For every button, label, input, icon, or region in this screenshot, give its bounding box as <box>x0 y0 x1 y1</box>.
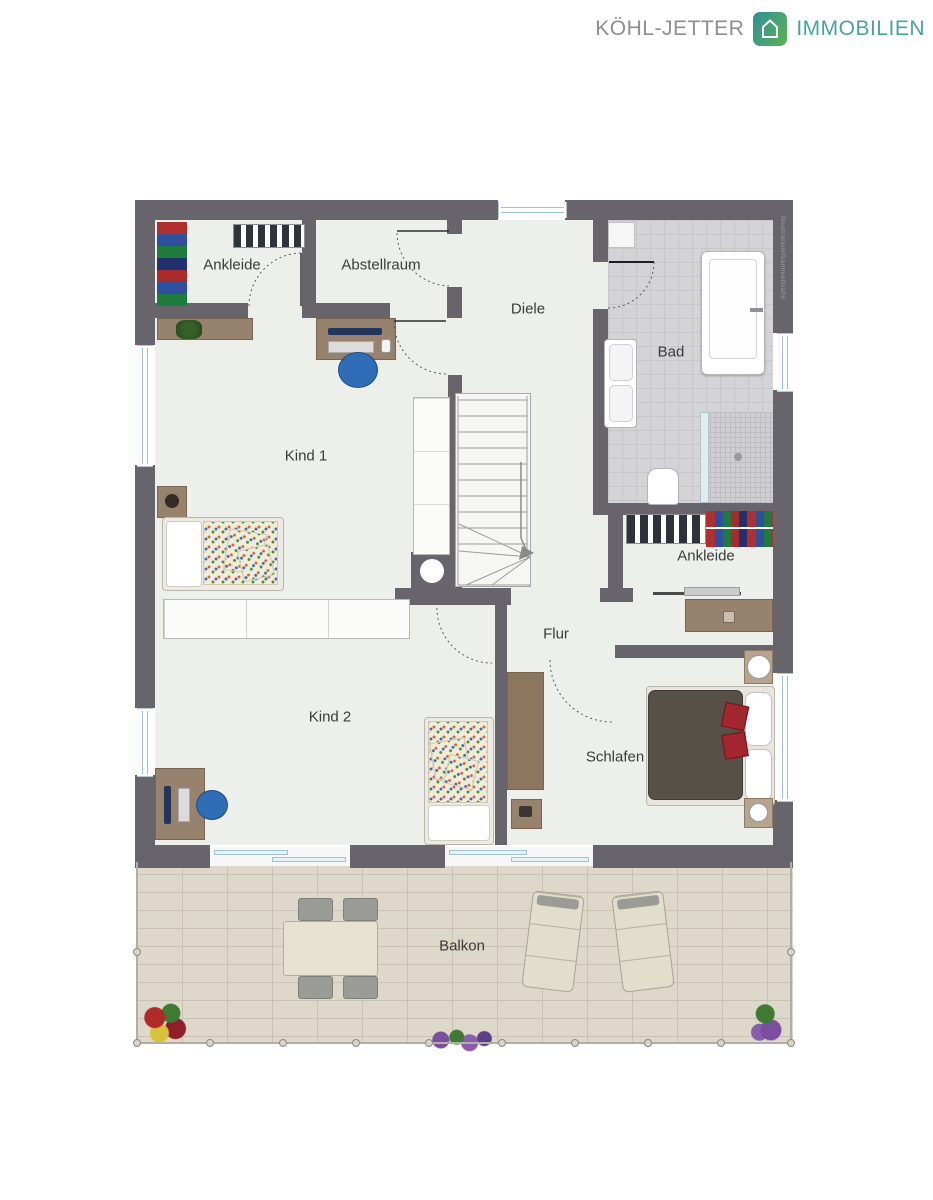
balcony-chair <box>343 976 378 999</box>
wall-segment <box>600 588 633 602</box>
balcony-chair <box>298 898 333 921</box>
window <box>137 708 153 777</box>
room-label-bad: Bad <box>658 344 685 361</box>
wardrobe-by-stairs <box>413 397 450 555</box>
room-label-diele: Diele <box>511 301 545 318</box>
washbasin-bowl <box>609 385 633 422</box>
wall-segment <box>135 200 498 220</box>
wall-segment <box>395 588 511 605</box>
house-icon <box>753 12 787 46</box>
plant <box>176 320 202 339</box>
logo-suffix-text: IMMOBILIEN <box>796 17 925 41</box>
clothes-rack <box>706 511 773 547</box>
wardrobe-kind2 <box>163 599 410 639</box>
wall-segment <box>773 800 793 845</box>
keyboard <box>178 788 190 822</box>
room-label-kind-1: Kind 1 <box>285 448 328 465</box>
shower-drain <box>734 453 742 461</box>
wall-segment <box>135 220 155 345</box>
bed-pillow <box>745 692 772 746</box>
hall-nightstand-item <box>519 806 532 817</box>
keyboard <box>328 341 374 353</box>
wall-segment <box>773 390 793 673</box>
dresser-knob <box>723 611 735 623</box>
wall-segment <box>135 775 155 845</box>
bed-pillow <box>745 749 772 801</box>
clothes-rack <box>157 222 187 306</box>
wall-segment <box>565 200 793 220</box>
window <box>498 202 567 218</box>
monitor <box>328 328 382 335</box>
nightstand-lamp <box>749 803 768 822</box>
bed-pillow <box>428 805 490 841</box>
wall-segment <box>302 303 390 318</box>
room-label-abstellraum: Abstellraum <box>341 257 420 274</box>
flower-pot <box>750 1000 788 1046</box>
balcony-chair <box>298 976 333 999</box>
hall-cabinet <box>507 672 544 790</box>
room-label-ankleide-1: Ankleide <box>203 257 261 274</box>
room-label-ankleide-2: Ankleide <box>677 548 735 565</box>
wall-segment <box>608 515 623 593</box>
chimney-flue <box>420 559 444 583</box>
wall-segment <box>593 845 793 868</box>
balcony-sliding-door <box>210 847 350 866</box>
washbasin-bowl <box>609 344 633 381</box>
sideboard <box>157 318 253 340</box>
watermark: Illustration/GammaGrafik <box>779 216 786 300</box>
wall-segment <box>135 303 248 318</box>
monitor <box>164 786 171 824</box>
bath-shelf <box>608 222 635 248</box>
red-cushion <box>721 702 750 731</box>
sliding-door-panel <box>684 587 740 596</box>
balcony-table <box>283 921 378 976</box>
flower-pot <box>141 1000 187 1044</box>
room-label-kind-2: Kind 2 <box>309 709 352 726</box>
wall-segment <box>593 220 608 262</box>
window <box>777 673 793 802</box>
window <box>777 333 793 392</box>
wall-segment <box>447 287 462 318</box>
company-logo: KÖHL-JETTER IMMOBILIEN <box>595 12 925 46</box>
bathtub-faucet <box>750 308 763 312</box>
shoe-rack <box>626 514 706 544</box>
room-label-flur: Flur <box>543 626 569 643</box>
shoe-rack <box>233 224 305 248</box>
floor-plan-page: KÖHL-JETTER IMMOBILIEN <box>0 0 933 1200</box>
desk-chair <box>338 352 378 388</box>
stairwell <box>455 393 531 587</box>
red-cushion <box>721 731 749 759</box>
nightstand-lamp <box>747 655 771 679</box>
bed-pillow <box>166 521 202 587</box>
shower-glass <box>700 412 709 503</box>
wall-segment <box>495 598 507 845</box>
wall-segment <box>135 465 155 708</box>
wall-segment <box>350 845 445 868</box>
clothes-rail <box>706 527 773 529</box>
flower-box <box>428 1026 492 1054</box>
mouse <box>381 339 391 353</box>
nightstand-lamp <box>165 494 179 508</box>
toilet <box>647 468 679 505</box>
wall-segment <box>135 845 210 868</box>
window <box>137 345 153 467</box>
balcony-sliding-door <box>445 847 593 866</box>
logo-brand-text: KÖHL-JETTER <box>595 17 744 41</box>
balcony-chair <box>343 898 378 921</box>
wall-segment <box>447 220 462 234</box>
desk-chair <box>196 790 228 820</box>
room-label-balkon: Balkon <box>439 938 485 955</box>
room-label-schlafen: Schlafen <box>586 749 644 766</box>
